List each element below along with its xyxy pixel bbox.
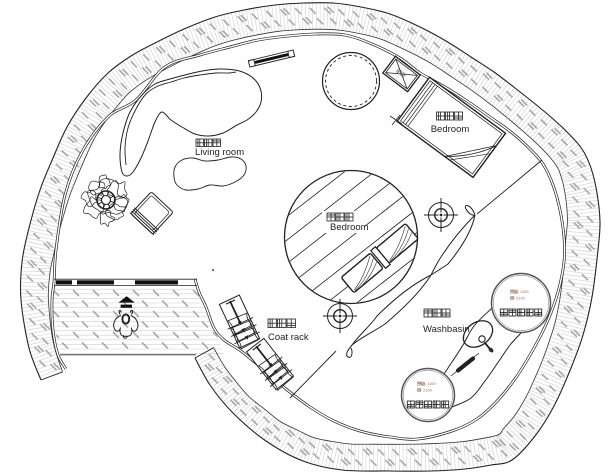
svg-text:Living room: Living room	[195, 147, 244, 158]
svg-text:: 2100: : 2100	[514, 295, 526, 300]
svg-text:Bedroom: Bedroom	[431, 124, 470, 135]
svg-text:Washbasin: Washbasin	[423, 324, 470, 335]
svg-text:: 1100: : 1100	[425, 381, 436, 386]
svg-text:Bedroom: Bedroom	[330, 222, 369, 233]
svg-text:: 1100: : 1100	[518, 289, 529, 294]
svg-text:Coat rack: Coat rack	[268, 332, 309, 343]
svg-text:: 2100: : 2100	[421, 387, 433, 392]
